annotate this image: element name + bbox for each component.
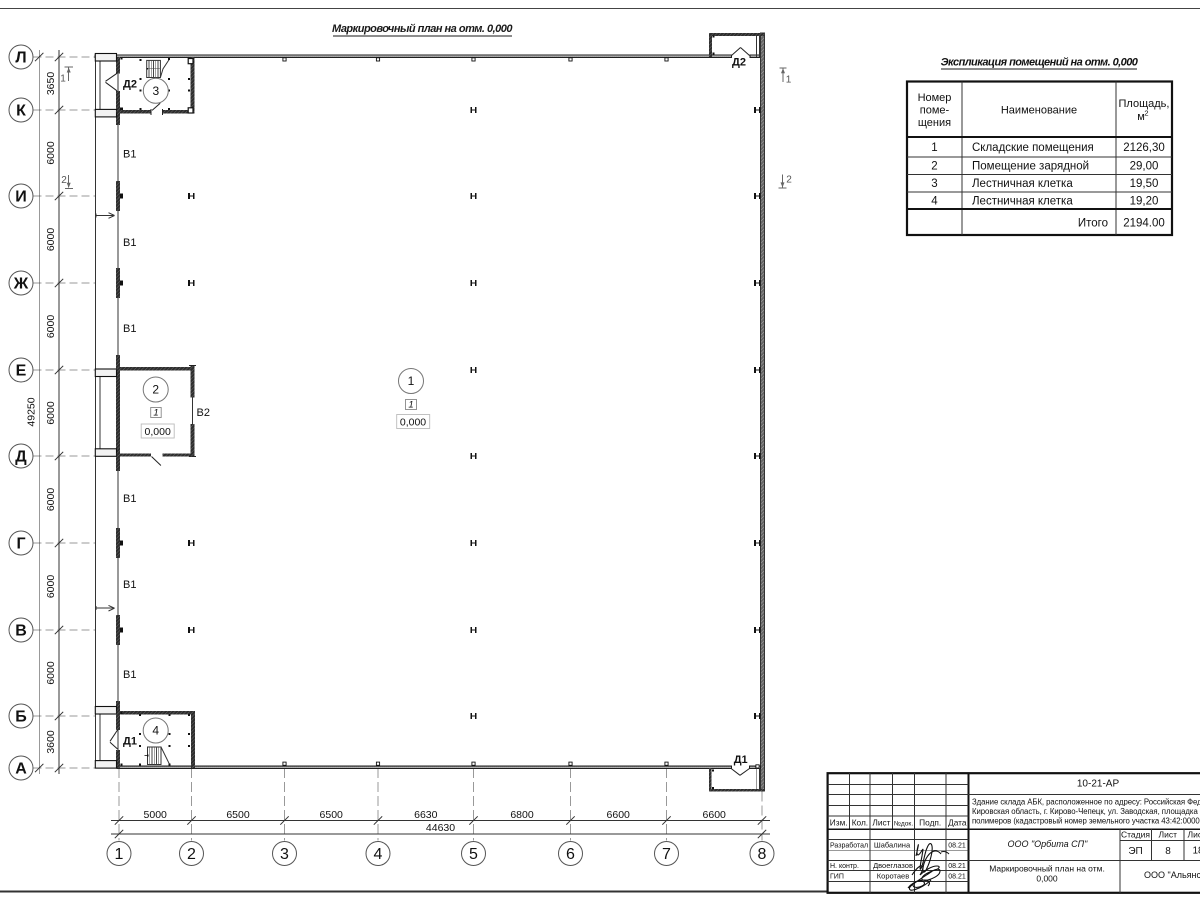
svg-text:Помещение зарядной: Помещение зарядной (972, 161, 1089, 173)
svg-text:Б: Б (15, 709, 27, 726)
svg-text:Экспликация помещений на отм.: Экспликация помещений на отм. 0,000 (941, 57, 1139, 69)
svg-text:10-21-АР: 10-21-АР (1077, 779, 1120, 790)
svg-text:И: И (15, 189, 27, 206)
svg-text:3: 3 (280, 846, 289, 863)
svg-text:Здание склада АБК, расположенн: Здание склада АБК, расположенное по адре… (972, 798, 1200, 807)
svg-text:3: 3 (152, 84, 159, 98)
svg-text:Д2: Д2 (732, 57, 746, 69)
svg-text:Кировская область, г. Кирово-Ч: Кировская область, г. Кирово-Чепецк, ул.… (972, 807, 1200, 816)
svg-text:Дата: Дата (948, 818, 967, 828)
svg-text:2: 2 (187, 846, 196, 863)
svg-text:Лестничная клетка: Лестничная клетка (972, 196, 1073, 208)
svg-text:№док.: №док. (894, 820, 913, 827)
svg-text:Изм.: Изм. (830, 818, 848, 828)
svg-text:1: 1 (115, 846, 124, 863)
svg-text:1: 1 (931, 142, 937, 154)
svg-text:6600: 6600 (607, 809, 631, 821)
svg-text:Кол.: Кол. (852, 818, 868, 828)
svg-text:Складские помещения: Складские помещения (972, 142, 1094, 154)
svg-text:Итого: Итого (1078, 218, 1108, 230)
svg-text:6000: 6000 (45, 488, 57, 512)
svg-text:Л: Л (15, 50, 26, 67)
svg-text:Подп.: Подп. (919, 818, 941, 828)
svg-text:6500: 6500 (320, 809, 344, 821)
svg-text:К: К (16, 103, 26, 120)
svg-text:0,000: 0,000 (1036, 874, 1058, 884)
svg-text:2: 2 (152, 383, 159, 397)
svg-text:3: 3 (931, 178, 937, 190)
svg-text:6000: 6000 (45, 401, 57, 425)
svg-text:В1: В1 (123, 493, 136, 505)
svg-text:8: 8 (758, 846, 767, 863)
svg-text:Д2: Д2 (123, 79, 137, 91)
svg-text:Стадия: Стадия (1121, 830, 1150, 840)
svg-text:6000: 6000 (45, 315, 57, 339)
svg-text:поме-: поме- (920, 105, 950, 117)
svg-text:5: 5 (469, 846, 478, 863)
svg-text:Лестничная клетка: Лестничная клетка (972, 178, 1073, 190)
svg-text:1: 1 (786, 75, 792, 86)
svg-text:Листов: Листов (1188, 830, 1200, 840)
svg-text:Двоеглазов: Двоеглазов (873, 861, 913, 870)
svg-text:1: 1 (153, 408, 158, 419)
svg-text:2194.00: 2194.00 (1123, 218, 1165, 230)
svg-text:8: 8 (1165, 846, 1171, 857)
svg-text:Номер: Номер (918, 92, 952, 104)
svg-text:29,00: 29,00 (1130, 161, 1159, 173)
svg-text:Г: Г (16, 536, 25, 553)
svg-text:Маркировочный план на отм.: Маркировочный план на отм. (989, 864, 1105, 874)
svg-text:ГИП: ГИП (830, 874, 844, 881)
svg-text:08.21: 08.21 (948, 874, 966, 881)
svg-text:6: 6 (566, 846, 575, 863)
svg-text:Разработал: Разработал (830, 842, 868, 850)
svg-text:Шабалина: Шабалина (874, 841, 911, 850)
svg-text:4: 4 (152, 724, 159, 738)
svg-text:6000: 6000 (45, 575, 57, 599)
svg-text:1: 1 (408, 374, 415, 388)
svg-text:6800: 6800 (510, 809, 534, 821)
svg-text:В1: В1 (123, 323, 136, 335)
svg-text:В1: В1 (123, 237, 136, 249)
svg-text:6000: 6000 (45, 141, 57, 165)
svg-text:Н. контр.: Н. контр. (830, 863, 859, 870)
svg-text:5000: 5000 (144, 809, 168, 821)
svg-text:19,50: 19,50 (1130, 178, 1159, 190)
svg-text:2: 2 (61, 175, 67, 186)
svg-text:08.21: 08.21 (948, 843, 966, 850)
svg-text:44630: 44630 (426, 822, 455, 834)
svg-text:Ж: Ж (13, 276, 29, 293)
svg-text:3650: 3650 (45, 72, 57, 96)
svg-text:В1: В1 (123, 669, 136, 681)
svg-text:0,000: 0,000 (400, 416, 426, 428)
svg-text:ООО "Альянспроект": ООО "Альянспроект" (1144, 870, 1200, 880)
svg-text:3600: 3600 (45, 730, 57, 754)
svg-text:ООО "Орбита СП": ООО "Орбита СП" (1007, 839, 1088, 849)
svg-text:08.21: 08.21 (948, 863, 966, 870)
svg-text:Лист: Лист (1159, 830, 1178, 840)
svg-text:19,20: 19,20 (1130, 196, 1159, 208)
svg-text:49250: 49250 (26, 397, 38, 426)
svg-text:щения: щения (918, 117, 951, 129)
svg-text:В1: В1 (123, 149, 136, 161)
svg-text:Д1: Д1 (123, 736, 137, 748)
svg-text:6000: 6000 (45, 661, 57, 685)
svg-text:0,000: 0,000 (145, 426, 171, 438)
svg-text:6630: 6630 (414, 809, 438, 821)
svg-text:Е: Е (16, 363, 27, 380)
svg-text:ЭП: ЭП (1128, 846, 1142, 857)
svg-text:В1: В1 (123, 579, 136, 591)
svg-text:полимеров (кадастровый номер з: полимеров (кадастровый номер земельного … (972, 817, 1200, 826)
svg-text:2: 2 (786, 175, 792, 186)
svg-text:1: 1 (408, 400, 413, 411)
svg-text:6000: 6000 (45, 228, 57, 252)
svg-text:1: 1 (60, 74, 66, 85)
svg-text:18: 18 (1193, 846, 1200, 857)
svg-text:Д: Д (15, 449, 27, 466)
svg-text:Коротаев: Коротаев (877, 872, 909, 881)
svg-text:6500: 6500 (226, 809, 250, 821)
svg-text:2: 2 (931, 161, 937, 173)
svg-text:2126,30: 2126,30 (1123, 142, 1165, 154)
svg-text:7: 7 (662, 846, 671, 863)
svg-text:4: 4 (374, 846, 383, 863)
svg-text:Маркировочный план на отм. 0,0: Маркировочный план на отм. 0,000 (332, 23, 513, 35)
svg-text:2: 2 (1144, 109, 1148, 118)
svg-text:Наименование: Наименование (1001, 105, 1077, 117)
svg-text:В2: В2 (197, 407, 210, 419)
svg-text:4: 4 (931, 196, 938, 208)
svg-text:Д1: Д1 (734, 754, 748, 766)
svg-text:А: А (15, 761, 27, 778)
svg-text:6600: 6600 (703, 809, 727, 821)
svg-text:Лист: Лист (872, 818, 890, 828)
svg-text:В: В (15, 623, 27, 640)
